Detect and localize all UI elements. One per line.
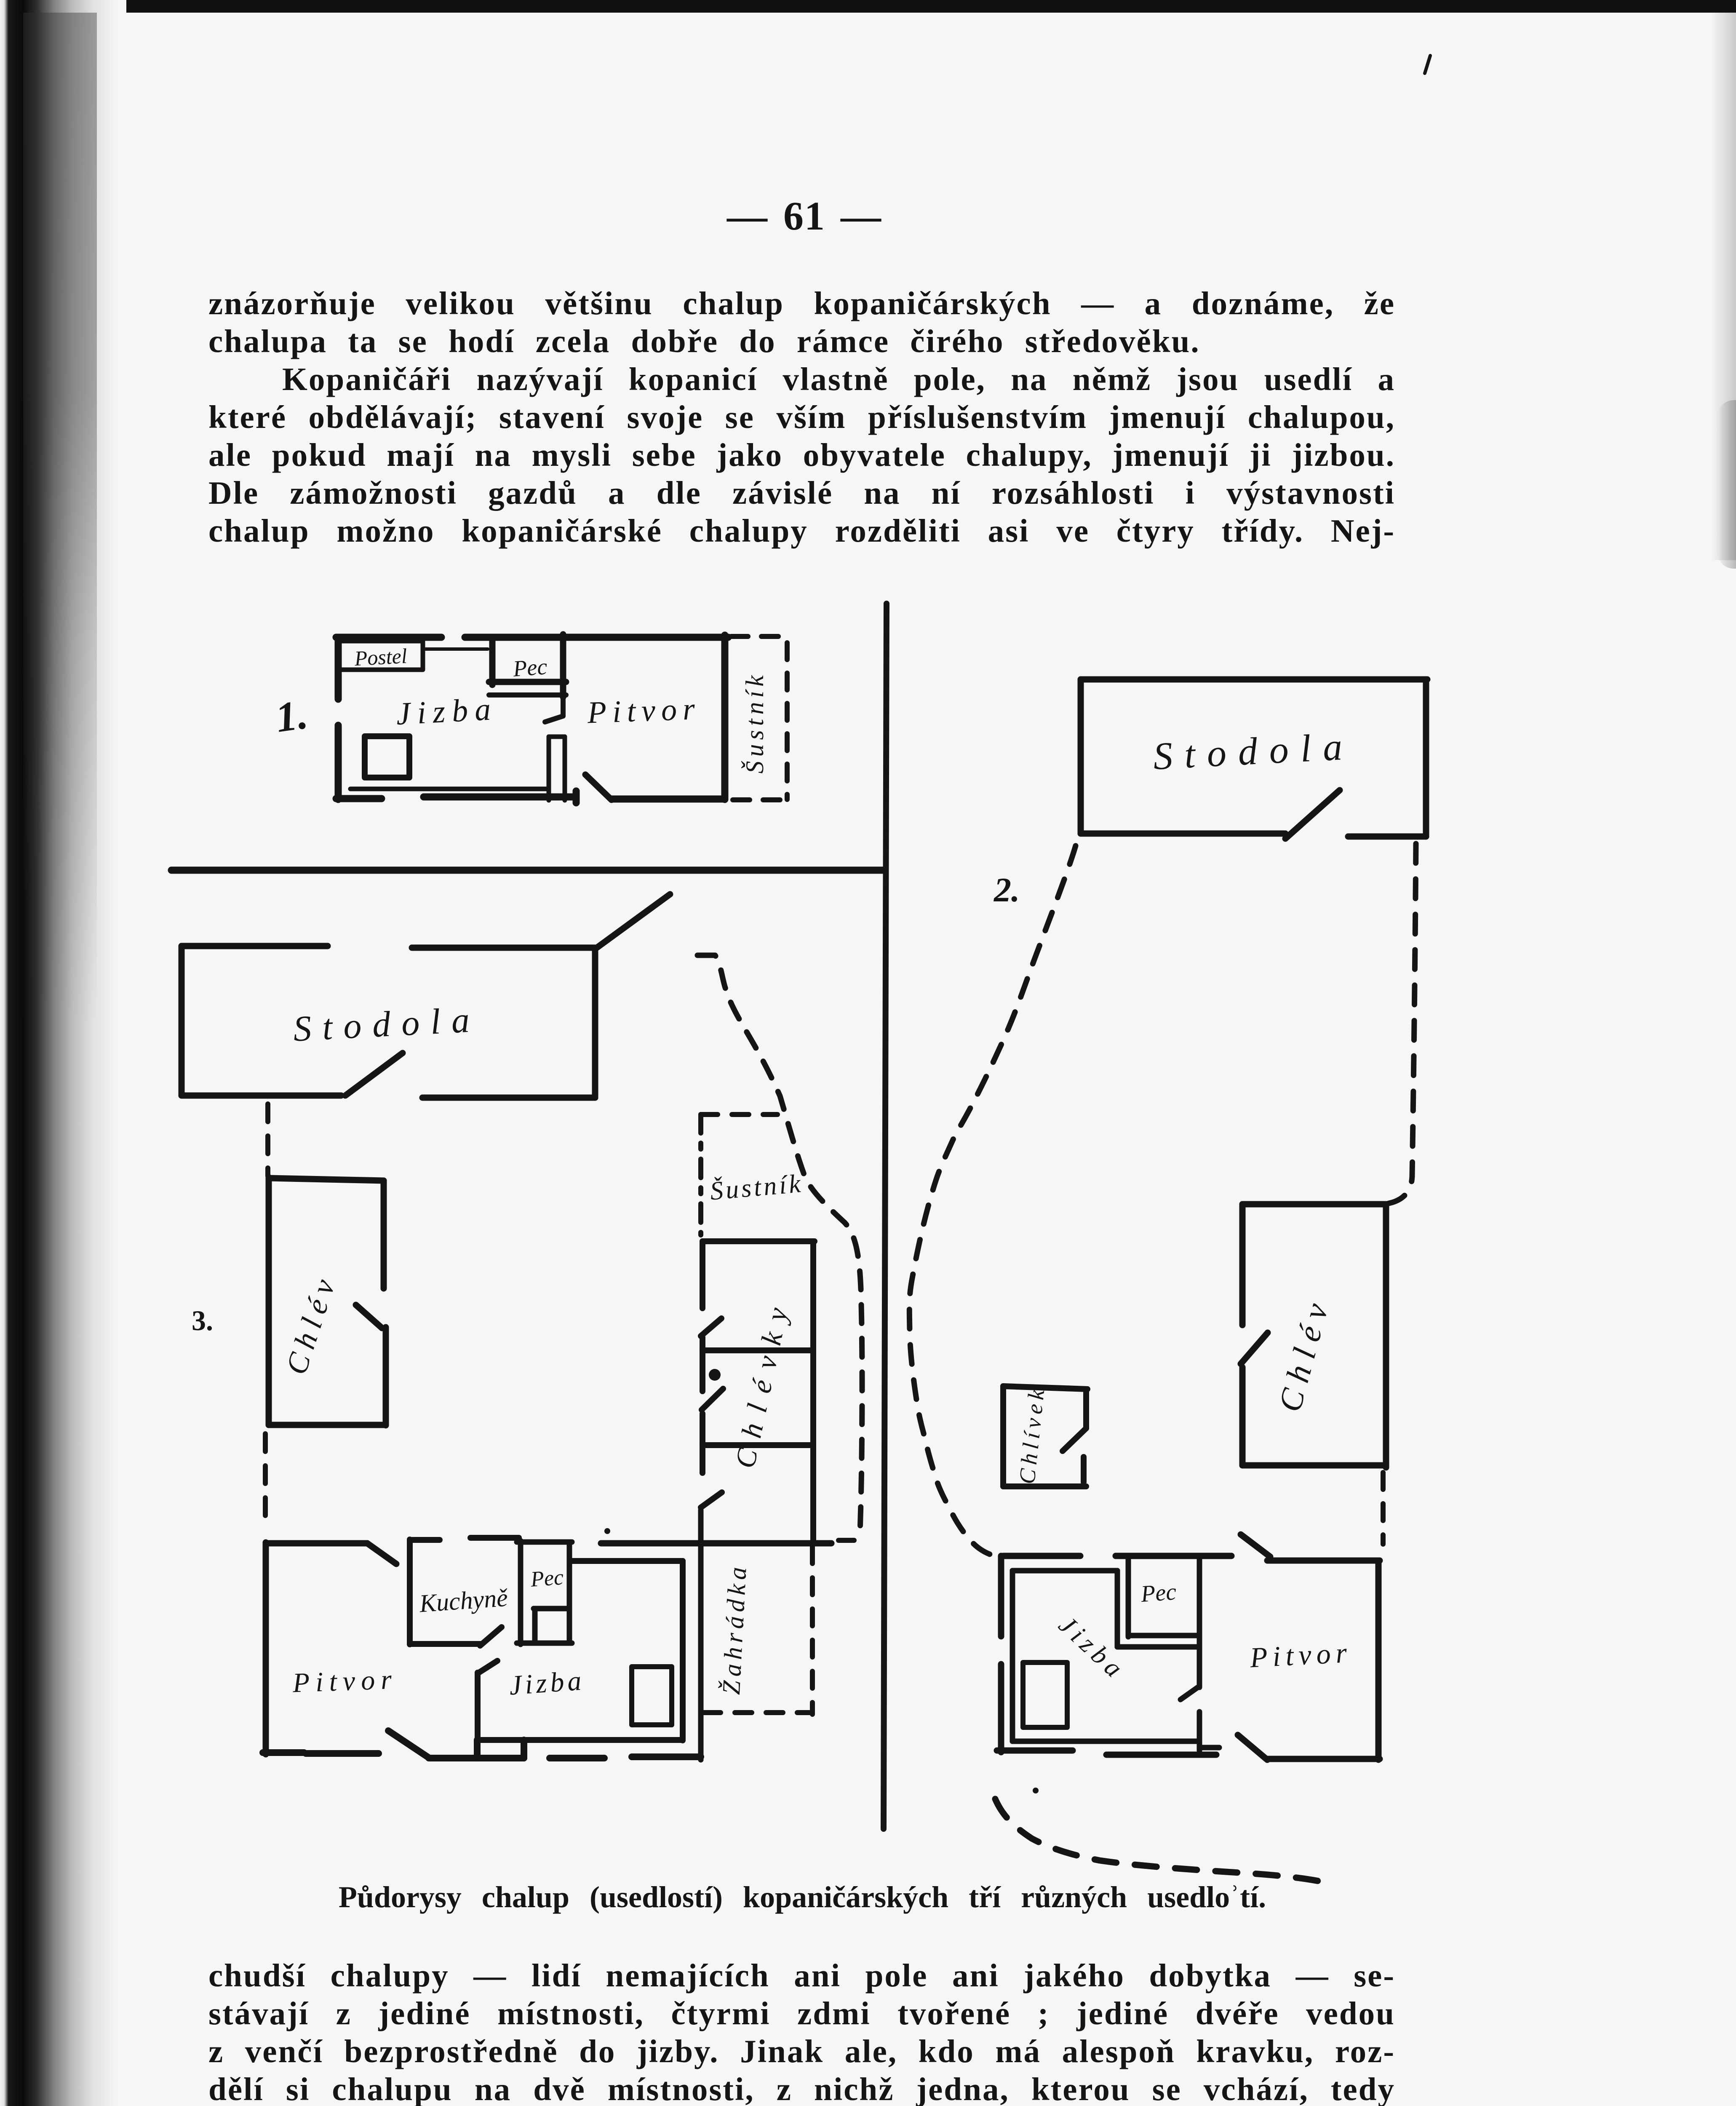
- svg-text:Pitvor: Pitvor: [586, 692, 701, 730]
- svg-text:Šustník: Šustník: [709, 1169, 804, 1206]
- svg-text:Chlívek: Chlívek: [1014, 1384, 1050, 1485]
- svg-text:1.: 1.: [273, 690, 311, 741]
- svg-text:Pec: Pec: [529, 1565, 564, 1591]
- svg-text:Stodola: Stodola: [292, 999, 481, 1049]
- svg-text:Stodola: Stodola: [1152, 724, 1355, 778]
- svg-text:Pec: Pec: [1140, 1579, 1177, 1607]
- svg-text:Šustník: Šustník: [741, 671, 769, 773]
- svg-text:Chlév: Chlév: [279, 1269, 344, 1379]
- svg-text:Pitvor: Pitvor: [1249, 1636, 1353, 1674]
- svg-text:Kuchyně: Kuchyně: [418, 1584, 509, 1618]
- svg-text:Jizba: Jizba: [508, 1665, 586, 1701]
- svg-text:Jizba: Jizba: [395, 691, 499, 732]
- svg-text:Chlév: Chlév: [1271, 1291, 1337, 1416]
- svg-text:2.: 2.: [994, 871, 1020, 909]
- svg-text:Žahrádka: Žahrádka: [717, 1562, 752, 1695]
- svg-text:Pitvor: Pitvor: [292, 1664, 398, 1699]
- svg-text:Pec: Pec: [512, 654, 548, 682]
- svg-text:3.: 3.: [192, 1304, 213, 1336]
- svg-text:Postel: Postel: [353, 644, 408, 671]
